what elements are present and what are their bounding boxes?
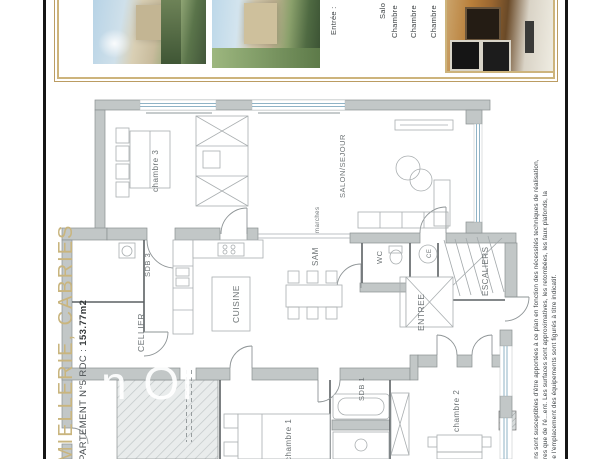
disclaimer-line-3: que l'emplacement des équipements sont f… <box>550 159 559 459</box>
room-label-marches: marches <box>315 206 321 233</box>
room-label-cuisine: CUISINE <box>231 285 241 323</box>
toilet <box>390 250 402 264</box>
wardrobe-chambre-3 <box>196 116 248 206</box>
room-label-sam: SAM <box>311 247 320 266</box>
legend-chambre-2: Chambre <box>409 5 418 38</box>
apartment-subtitle-prefix: PARTEMENT N°5 RDC : <box>78 346 89 459</box>
room-label-chambre-3: chambre 3 <box>151 150 160 192</box>
room-label-cellier: CELLIER <box>136 313 146 352</box>
legend-chambre-3: Chambre <box>429 5 438 38</box>
shower <box>333 432 389 459</box>
photo-appliance-2 <box>481 40 512 73</box>
room-label-salon-sejour: SALON/SEJOUR <box>338 134 347 198</box>
kitchen-counter <box>173 240 193 334</box>
coffee-table-2 <box>410 169 432 191</box>
room-label-escaliers: ESCALIERS <box>481 247 490 296</box>
room-label-sdb-3: SDB 3 <box>143 253 152 277</box>
photo-appliance-1 <box>450 40 481 71</box>
room-label-sdb-1: SDB 1 <box>357 377 366 401</box>
legend-salon: Salo <box>378 3 387 19</box>
photo-trees <box>161 0 181 64</box>
room-label-entree: ENTREE <box>416 294 426 331</box>
exterior-render-photo-1 <box>93 0 206 64</box>
interior-kitchen-photo <box>445 0 555 73</box>
photo-lawn <box>212 48 320 68</box>
room-label-ce: CE <box>427 249 433 258</box>
exterior-render-photo-2 <box>212 0 320 68</box>
project-title: MIELLERIE, CABRIES <box>55 224 78 459</box>
legend-entree: Entrée : <box>329 6 338 35</box>
apartment-area: 153.77m2 <box>78 300 89 346</box>
disclaimer-line-2: libres que de l'é...ent. Les surfaces so… <box>541 159 550 459</box>
room-label-chambre-1: chambre 1 <box>284 419 293 459</box>
apartment-subtitle: PARTEMENT N°5 RDC : 153.77m2 <box>78 300 89 459</box>
disclaimer-line-1: tions sont susceptibles d'être apportées… <box>532 159 541 459</box>
bed-chambre-2 <box>437 435 482 452</box>
photo-dark-cabinet <box>465 7 501 41</box>
site-watermark: n Of <box>101 356 196 410</box>
legend-chambre-1: Chambre <box>390 5 399 38</box>
photo-dark-strip <box>525 21 533 53</box>
coffee-table-1 <box>396 156 420 180</box>
room-label-chambre-2: chambre 2 <box>452 390 461 432</box>
disclaimer-block: tions sont susceptibles d'être apportées… <box>532 159 559 459</box>
photo-cloud <box>98 29 132 58</box>
photo-house-facade <box>244 3 276 44</box>
washbasin-sdb3 <box>122 246 132 256</box>
room-label-wc: WC <box>375 250 384 264</box>
dining-table <box>286 285 342 307</box>
